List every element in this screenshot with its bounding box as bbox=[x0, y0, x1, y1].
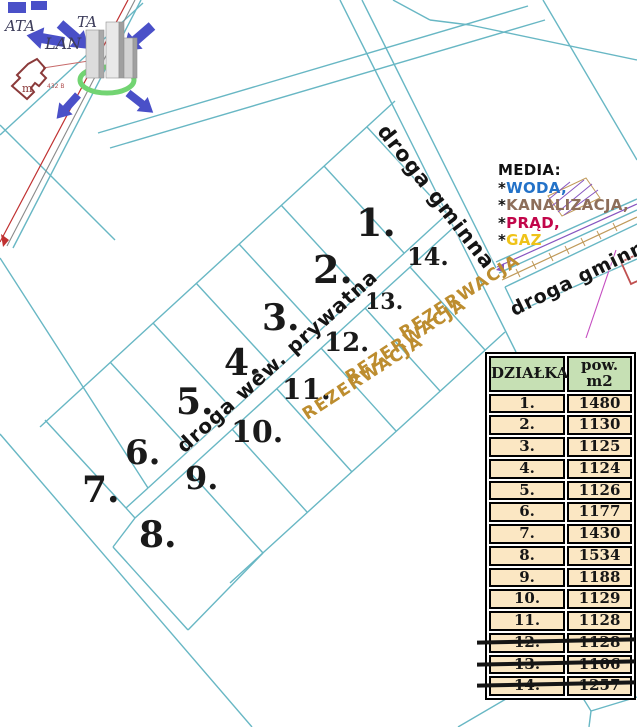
cell-plot-area: 1188 bbox=[567, 568, 632, 588]
cell-plot-number: 2. bbox=[489, 415, 565, 435]
cell-plot-area: 1430 bbox=[567, 524, 632, 544]
asterisk-icon: * bbox=[498, 214, 506, 232]
table-header-plot: DZIAŁKA bbox=[489, 356, 565, 392]
cell-plot-number: 8. bbox=[489, 546, 565, 566]
parcel-note: 432 B bbox=[47, 83, 64, 90]
cell-plot-area: 1129 bbox=[567, 589, 632, 609]
cell-plot-number: 14. bbox=[489, 676, 565, 696]
cell-plot-number: 6. bbox=[489, 502, 565, 522]
media-item-label: PRĄD, bbox=[506, 214, 560, 232]
cell-plot-area: 1534 bbox=[567, 546, 632, 566]
logo-text-right: TA bbox=[77, 13, 97, 31]
table-row: 3.1125 bbox=[489, 437, 632, 457]
cell-plot-area: 1126 bbox=[567, 481, 632, 501]
cell-plot-area: 1106 bbox=[567, 655, 632, 675]
table-row: 6.1177 bbox=[489, 502, 632, 522]
cell-plot-area: 1125 bbox=[567, 437, 632, 457]
table-row: 11.1128 bbox=[489, 611, 632, 631]
plot-table-wrap: DZIAŁKA pow. m2 1.14802.11303.11254.1124… bbox=[485, 352, 636, 678]
plot-table: DZIAŁKA pow. m2 1.14802.11303.11254.1124… bbox=[485, 352, 636, 700]
media-item-4: *GAZ bbox=[498, 232, 629, 250]
cell-plot-number: 9. bbox=[489, 568, 565, 588]
cell-plot-number: 7. bbox=[489, 524, 565, 544]
media-list: *WODA,*KANALIZACJA,*PRĄD,*GAZ bbox=[498, 180, 629, 250]
cell-plot-number: 3. bbox=[489, 437, 565, 457]
table-row: 14.1257 bbox=[489, 676, 632, 696]
cell-plot-area: 1257 bbox=[567, 676, 632, 696]
media-item-label: KANALIZACJA, bbox=[506, 196, 629, 214]
media-item-1: *WODA, bbox=[498, 180, 629, 198]
table-row: 10.1129 bbox=[489, 589, 632, 609]
plot-table-body: 1.14802.11303.11254.11245.11266.11777.14… bbox=[489, 394, 632, 697]
cell-plot-number: 5. bbox=[489, 481, 565, 501]
cell-plot-area: 1130 bbox=[567, 415, 632, 435]
media-item-3: *PRĄD, bbox=[498, 215, 629, 233]
cell-plot-area: 1124 bbox=[567, 459, 632, 479]
media-item-label: GAZ bbox=[506, 231, 542, 249]
table-row: 13.1106 bbox=[489, 655, 632, 675]
table-row: 4.1124 bbox=[489, 459, 632, 479]
cell-plot-number: 4. bbox=[489, 459, 565, 479]
cell-plot-number: 12. bbox=[489, 633, 565, 653]
media-title: MEDIA: bbox=[498, 162, 629, 180]
watermark-logo: ATA TA LAN bbox=[3, 1, 159, 125]
cell-plot-number: 13. bbox=[489, 655, 565, 675]
logo-text-bottom: LAN bbox=[44, 34, 82, 53]
building-outline: m 432 B bbox=[12, 59, 64, 99]
asterisk-icon: * bbox=[498, 179, 506, 197]
cell-plot-area: 1128 bbox=[567, 633, 632, 653]
cell-plot-area: 1177 bbox=[567, 502, 632, 522]
logo-text-left: ATA bbox=[3, 17, 35, 35]
table-row: 1.1480 bbox=[489, 394, 632, 414]
building-label: m bbox=[22, 82, 33, 95]
table-row: 12.1128 bbox=[489, 633, 632, 653]
table-row: 9.1188 bbox=[489, 568, 632, 588]
cell-plot-number: 10. bbox=[489, 589, 565, 609]
asterisk-icon: * bbox=[498, 231, 506, 249]
table-row: 8.1534 bbox=[489, 546, 632, 566]
media-item-label: WODA, bbox=[506, 179, 567, 197]
asterisk-icon: * bbox=[498, 196, 506, 214]
cell-plot-area: 1480 bbox=[567, 394, 632, 414]
table-row: 7.1430 bbox=[489, 524, 632, 544]
table-header-area: pow. m2 bbox=[567, 356, 632, 392]
media-legend: MEDIA: *WODA,*KANALIZACJA,*PRĄD,*GAZ bbox=[498, 162, 629, 250]
cell-plot-number: 1. bbox=[489, 394, 565, 414]
table-row: 2.1130 bbox=[489, 415, 632, 435]
plot-map-page: { "colors": { "parcel_line": "#68b7c4", … bbox=[0, 0, 637, 727]
media-item-2: *KANALIZACJA, bbox=[498, 197, 629, 215]
table-row: 5.1126 bbox=[489, 481, 632, 501]
cell-plot-number: 11. bbox=[489, 611, 565, 631]
cell-plot-area: 1128 bbox=[567, 611, 632, 631]
